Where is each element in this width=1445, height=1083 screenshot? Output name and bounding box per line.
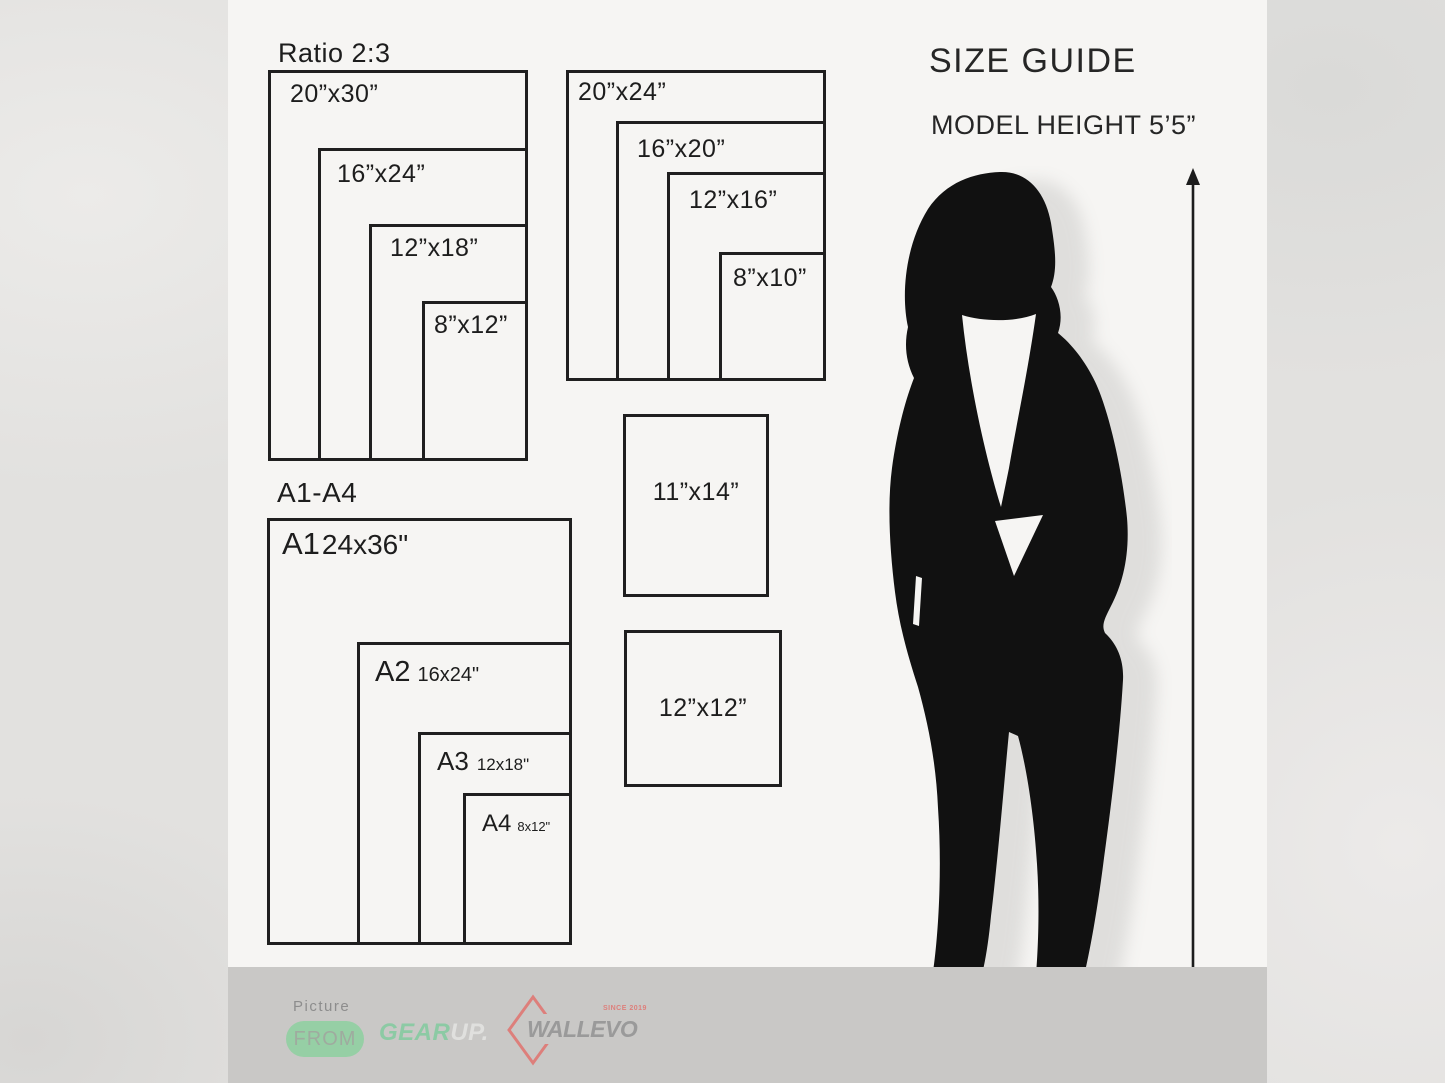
gearup-gear-text: GEAR	[379, 1019, 450, 1046]
a1-code: A1	[282, 526, 320, 562]
size-box-12x12: 12”x12”	[624, 630, 782, 787]
a1-dimensions: 24x36"	[322, 529, 408, 561]
size-label-a1: A1 24x36"	[282, 526, 408, 562]
size-label-11x14: 11”x14”	[653, 478, 739, 507]
a-series-heading: A1-A4	[277, 477, 357, 509]
size-box-8x10: 8”x10”	[719, 252, 826, 381]
size-label-12x18: 12”x18”	[390, 234, 478, 263]
from-label: FROM	[294, 1028, 357, 1051]
from-pill-logo: FROM	[286, 1021, 364, 1057]
size-label-20x24: 20”x24”	[578, 78, 666, 107]
height-arrow-icon	[1184, 167, 1202, 1010]
page-title: SIZE GUIDE	[929, 42, 1137, 81]
size-label-8x12: 8”x12”	[434, 311, 508, 340]
size-label-a3: A3 12x18"	[437, 746, 529, 777]
wallevo-since-label: SINCE 2019	[603, 1005, 647, 1012]
size-guide-infographic: Ratio 2:3 20”x30” 16”x24” 12”x18” 8”x12”…	[0, 0, 1445, 1083]
size-label-12x12: 12”x12”	[659, 694, 747, 723]
picture-caption: Picture	[293, 998, 350, 1015]
ratio-2-3-heading: Ratio 2:3	[278, 38, 391, 69]
a4-code: A4	[482, 810, 511, 838]
model-silhouette	[856, 166, 1172, 1012]
wallevo-logo: SINCE 2019 WALLEVO	[500, 990, 650, 1075]
model-height-label: MODEL HEIGHT 5’5”	[931, 110, 1196, 141]
size-label-8x10: 8”x10”	[733, 264, 807, 293]
size-label-a4: A4 8x12"	[482, 810, 550, 838]
gearup-up-text: UP.	[450, 1019, 488, 1046]
wallevo-brand-text: WALLEVO	[527, 1016, 637, 1043]
size-box-8x12: 8”x12”	[422, 301, 528, 461]
gearup-logo: GEARUP.	[379, 1019, 489, 1047]
a3-code: A3	[437, 746, 469, 777]
size-label-16x24: 16”x24”	[337, 160, 425, 189]
a3-dimensions: 12x18"	[477, 755, 529, 775]
a4-dimensions: 8x12"	[517, 819, 550, 834]
footer-bar: Picture FROM GEARUP. SINCE 2019 WALLEVO	[228, 967, 1267, 1083]
size-box-a4: A4 8x12"	[463, 793, 572, 945]
size-label-20x30: 20”x30”	[290, 80, 378, 109]
a2-dimensions: 16x24"	[417, 664, 479, 687]
a2-code: A2	[375, 656, 410, 689]
size-label-12x16: 12”x16”	[689, 186, 777, 215]
size-box-11x14: 11”x14”	[623, 414, 769, 597]
size-label-16x20: 16”x20”	[637, 135, 725, 164]
size-label-a2: A2 16x24"	[375, 656, 479, 689]
